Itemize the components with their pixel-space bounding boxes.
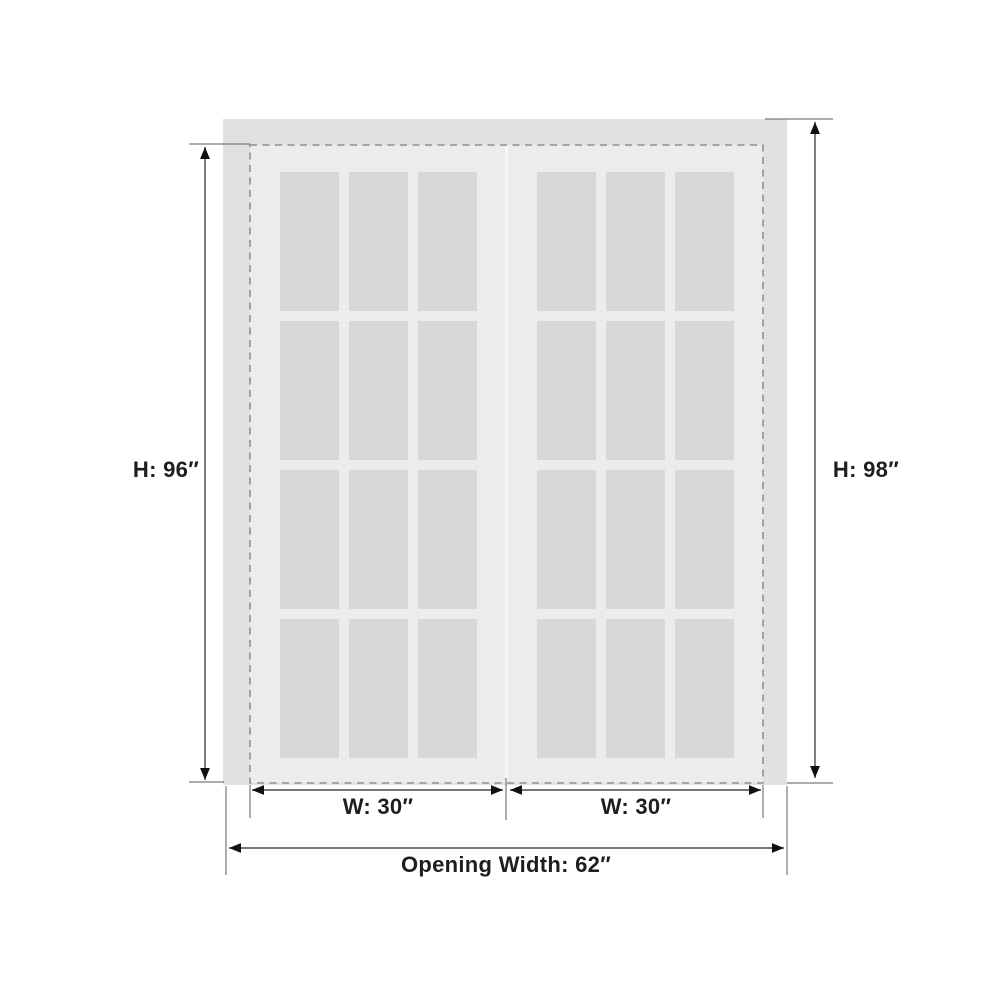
dimension-diagram: H: 96″ H: 98″ W: 30″ W: 30″ Opening Widt… bbox=[0, 0, 1000, 1000]
glass-pane bbox=[537, 619, 596, 758]
opening-width-label: Opening Width: 62″ bbox=[356, 853, 656, 877]
diagram-canvas bbox=[0, 0, 1000, 1000]
glass-pane bbox=[537, 172, 596, 311]
glass-pane bbox=[349, 321, 408, 460]
glass-pane bbox=[537, 470, 596, 609]
glass-pane bbox=[349, 619, 408, 758]
opening-height-label: H: 98″ bbox=[796, 458, 936, 482]
door-width-right-label: W: 30″ bbox=[566, 795, 706, 819]
glass-pane bbox=[606, 470, 665, 609]
glass-pane bbox=[349, 172, 408, 311]
glass-pane bbox=[537, 321, 596, 460]
glass-pane bbox=[418, 470, 477, 609]
glass-pane bbox=[280, 619, 339, 758]
glass-pane bbox=[606, 619, 665, 758]
door-width-left-label: W: 30″ bbox=[308, 795, 448, 819]
glass-pane bbox=[418, 321, 477, 460]
glass-pane bbox=[675, 619, 734, 758]
glass-pane bbox=[606, 321, 665, 460]
glass-pane bbox=[280, 321, 339, 460]
glass-pane bbox=[675, 321, 734, 460]
glass-pane bbox=[418, 619, 477, 758]
glass-pane bbox=[606, 172, 665, 311]
glass-pane bbox=[418, 172, 477, 311]
glass-pane bbox=[280, 172, 339, 311]
glass-pane bbox=[675, 470, 734, 609]
glass-pane bbox=[280, 470, 339, 609]
door-height-label: H: 96″ bbox=[96, 458, 236, 482]
glass-pane bbox=[349, 470, 408, 609]
glass-pane bbox=[675, 172, 734, 311]
